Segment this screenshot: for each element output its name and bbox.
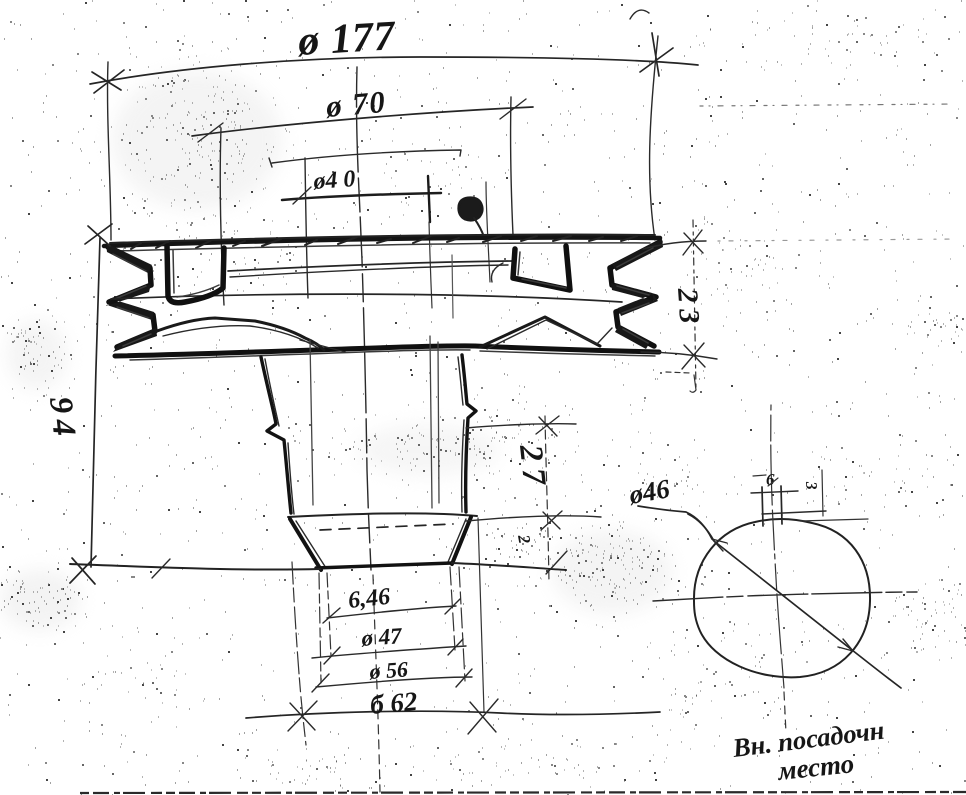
svg-text:ø 47: ø 47 (360, 623, 404, 651)
svg-text:94: 94 (42, 395, 83, 444)
svg-text:б 62: б 62 (369, 686, 419, 720)
svg-text:ø 56: ø 56 (368, 656, 409, 684)
svg-text:3: 3 (802, 480, 820, 490)
svg-text:ø4 0: ø4 0 (312, 166, 357, 195)
svg-text:23: 23 (671, 286, 706, 330)
svg-text:27: 27 (512, 442, 553, 494)
svg-text:6,46: 6,46 (347, 584, 391, 614)
svg-text:ø 70: ø 70 (324, 84, 388, 124)
svg-text:ø 177: ø 177 (296, 13, 398, 65)
svg-text:6: 6 (766, 470, 775, 489)
